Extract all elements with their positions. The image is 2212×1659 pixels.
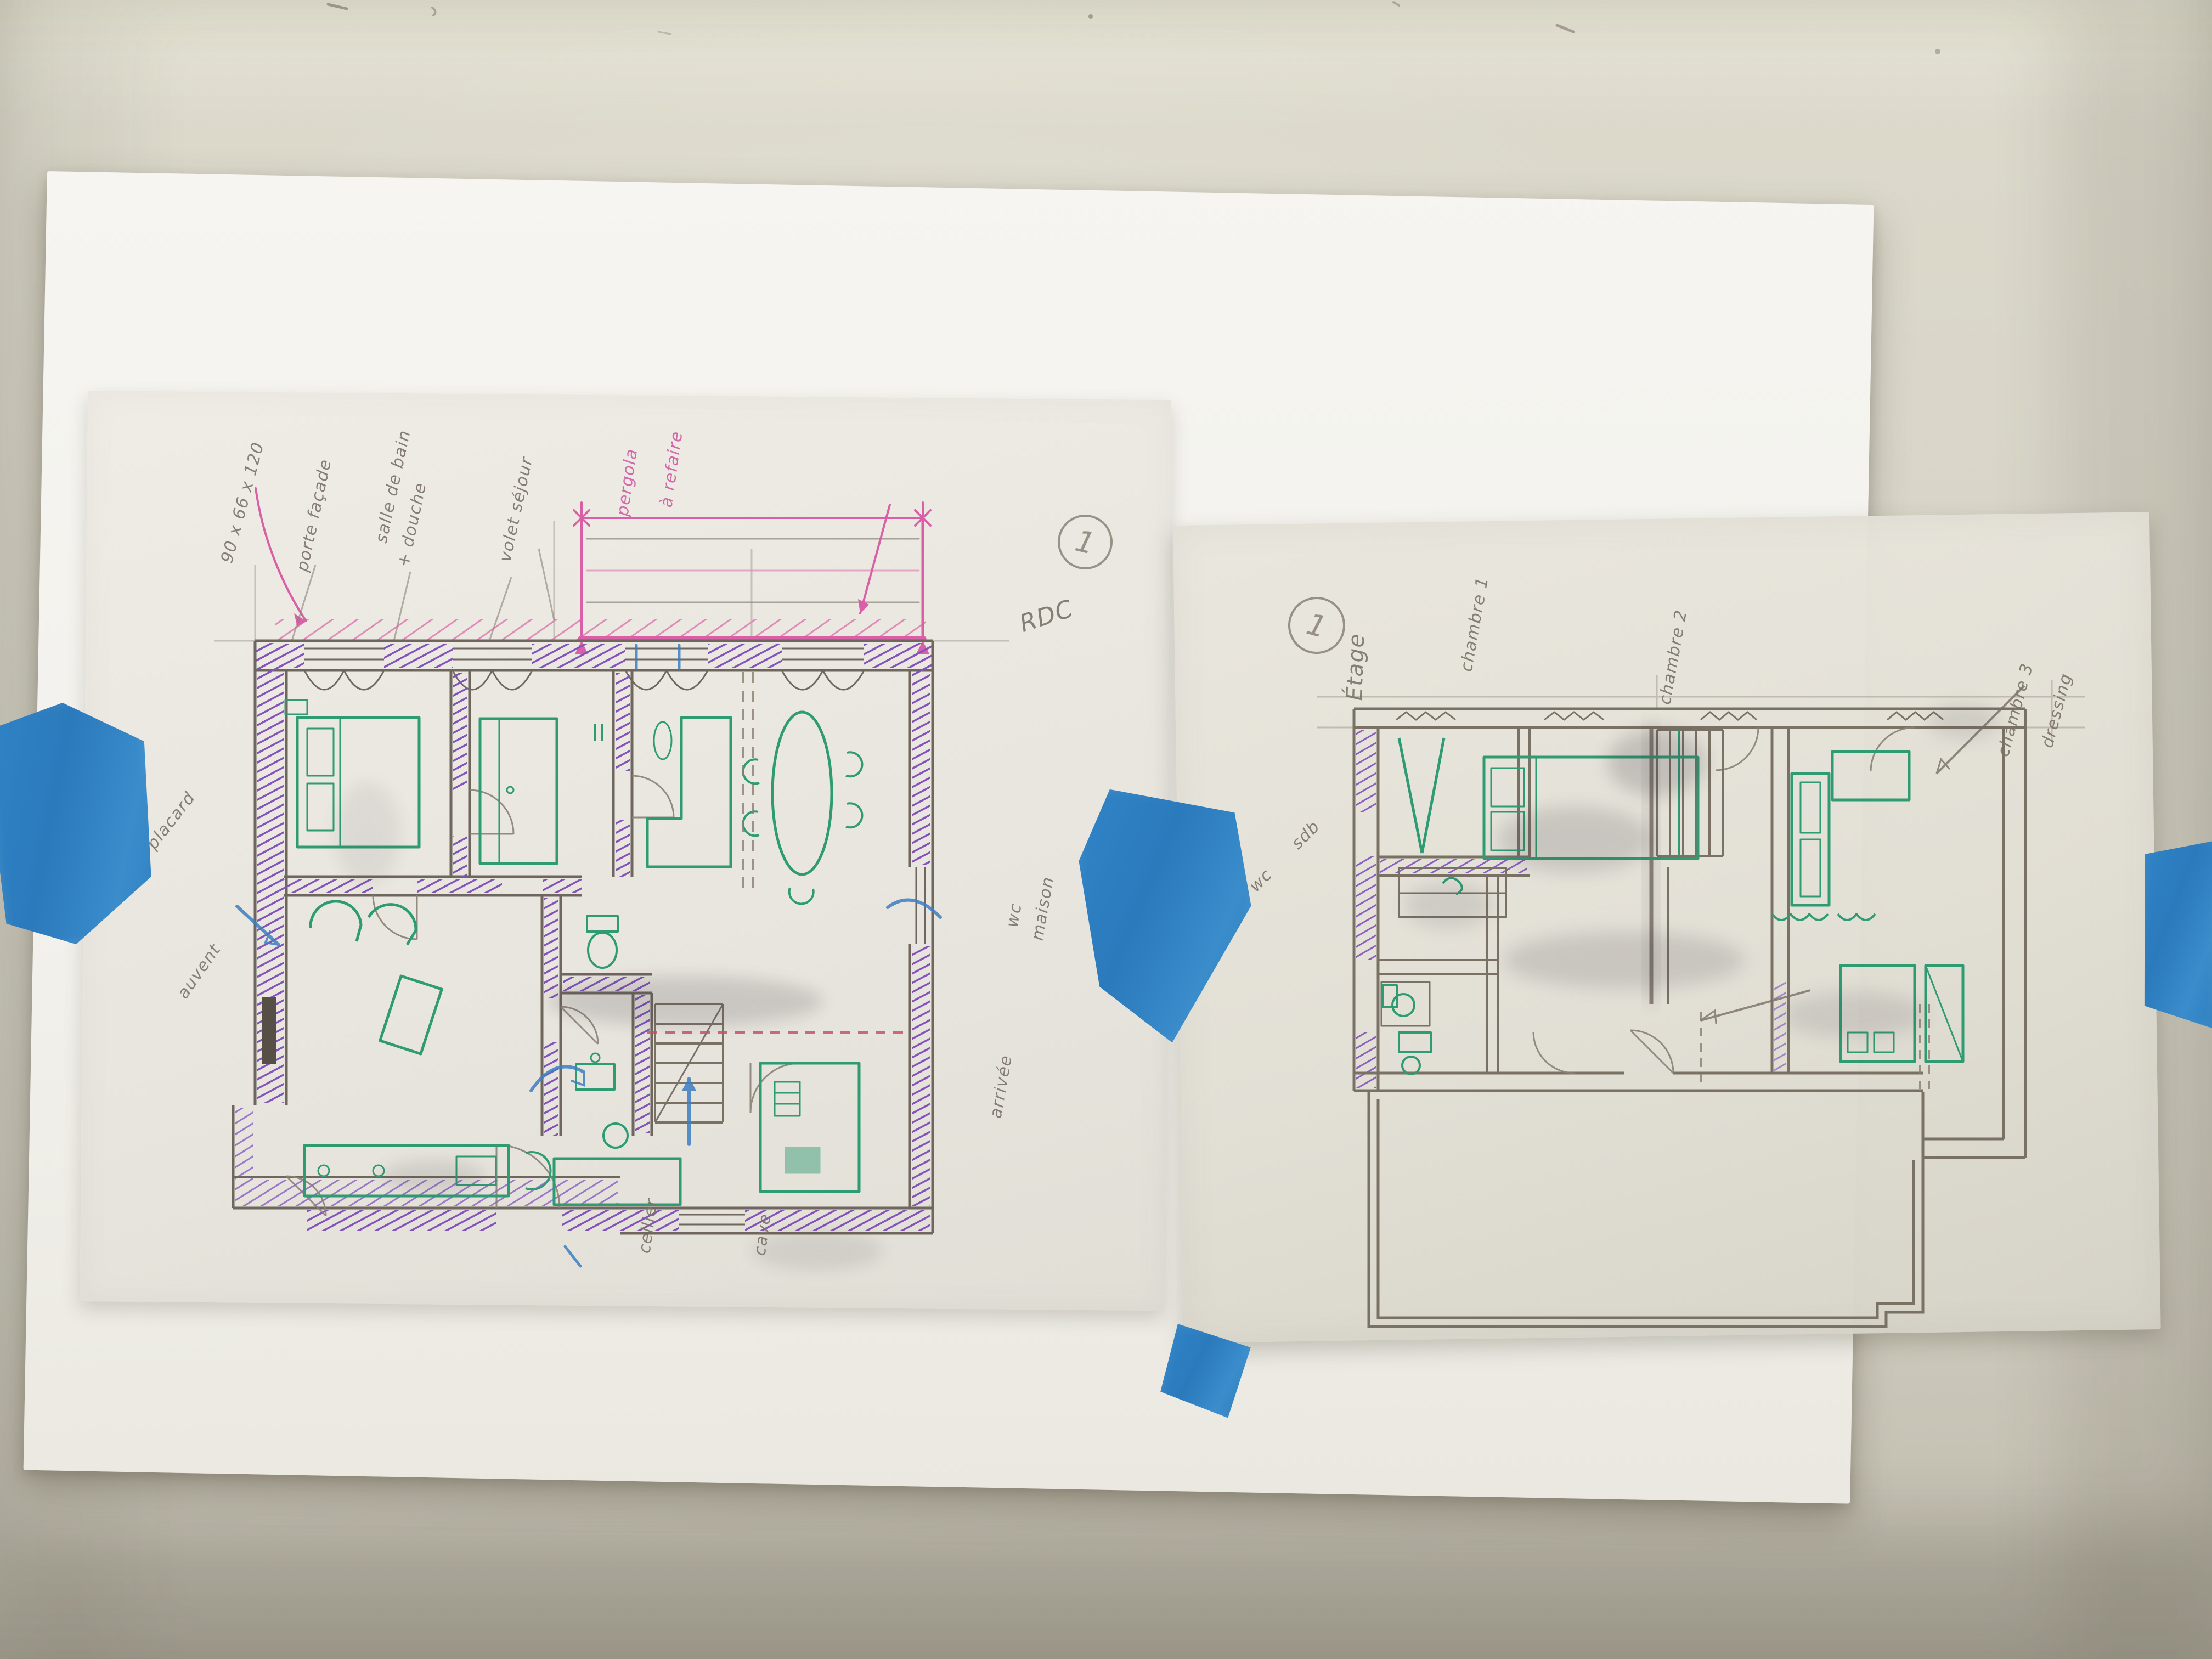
wardrobe [480, 719, 557, 864]
floor-plan-rdc [203, 483, 1070, 1300]
floor-label-etage: Étage [1342, 633, 1369, 701]
armchairs [311, 901, 442, 1054]
mid-wall-hatch [284, 879, 582, 893]
void-outer [1369, 1092, 1923, 1327]
wc [1381, 982, 1431, 1074]
window-marks [1396, 712, 1943, 720]
tape-right-edge [2136, 836, 2212, 1029]
photo-of-floorplan-sketches: { "scene": { "description": "Two hand-dr… [0, 0, 2212, 1659]
pergola-leader-arrow [860, 505, 890, 613]
void-inner [1378, 1099, 1914, 1318]
tv-unit [262, 997, 276, 1064]
bedroom-bottom-right [760, 1063, 859, 1192]
pergola-terrace [256, 488, 930, 654]
sofa-L [595, 718, 731, 867]
furniture [285, 700, 862, 1205]
bottom-wall-hatch [307, 1210, 930, 1231]
dining-table [743, 712, 862, 904]
wall-scuff-marks [0, 0, 2212, 88]
floor-plan-etage [1317, 675, 2085, 1339]
shower [1399, 738, 1444, 853]
